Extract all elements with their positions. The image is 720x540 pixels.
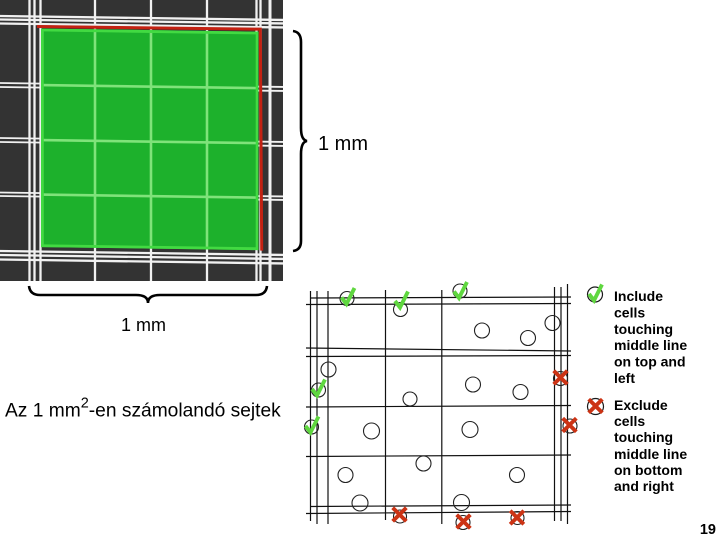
svg-text:cells: cells bbox=[614, 304, 645, 320]
svg-text:on top and: on top and bbox=[614, 354, 686, 370]
svg-text:touching: touching bbox=[614, 429, 673, 445]
svg-text:Include: Include bbox=[614, 288, 663, 304]
svg-text:middle line: middle line bbox=[614, 446, 687, 462]
svg-text:left: left bbox=[614, 370, 635, 386]
svg-text:and right: and right bbox=[614, 478, 674, 494]
svg-text:1 mm: 1 mm bbox=[318, 133, 368, 155]
svg-text:19: 19 bbox=[700, 522, 716, 538]
svg-text:Az 1 mm2-en számolandó sejtek: Az 1 mm2-en számolandó sejtek bbox=[5, 396, 281, 422]
svg-text:on bottom: on bottom bbox=[614, 462, 682, 478]
svg-text:1 mm: 1 mm bbox=[121, 315, 166, 335]
svg-text:middle line: middle line bbox=[614, 337, 687, 353]
svg-text:Exclude: Exclude bbox=[614, 397, 668, 413]
svg-text:touching: touching bbox=[614, 321, 673, 337]
svg-text:cells: cells bbox=[614, 413, 645, 429]
